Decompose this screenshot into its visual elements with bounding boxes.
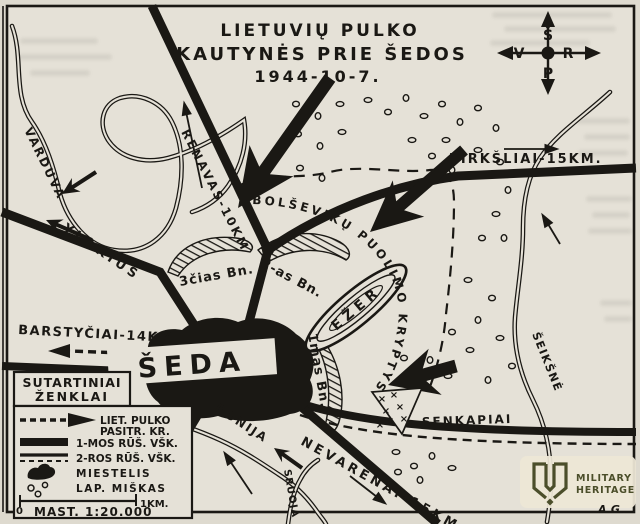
watermark-line2: HERITAGE [576, 485, 635, 496]
title-line3: 1944-10-7. [254, 67, 381, 86]
cross-mark: × [386, 416, 394, 427]
legend-town-label: MIESTELIS [76, 468, 151, 480]
compass-north-label: Š [543, 26, 553, 44]
battle-map-svg: EŽER ××××××× ŠEDA BOLŠEVIKŲ PUOLIMO KRYP… [0, 0, 640, 524]
scale-zero-label: 0 [16, 506, 23, 517]
compass-south-label: P [543, 66, 553, 82]
legend-road1-label: 1-MOS RŪŠ. VŠK. [76, 437, 178, 450]
legend-road2-label: 2-ROS RŪŠ. VŠK. [76, 452, 176, 465]
compass-east-label: R [563, 46, 574, 62]
watermark-line1: MILITARY [576, 473, 632, 484]
title-line1: LIETUVIŲ PULKO [220, 21, 419, 41]
cross-mark: × [376, 420, 384, 431]
road-junction [262, 244, 274, 256]
road-label-tirksliai: TIRKŠLIAI-15KM. [450, 151, 603, 167]
cross-mark: × [378, 394, 386, 405]
author-signature: A.G. [597, 503, 624, 516]
military-heritage-watermark: MILITARY HERITAGE [520, 456, 636, 508]
scanned-battle-map-page: EŽER ××××××× ŠEDA BOLŠEVIKŲ PUOLIMO KRYP… [0, 0, 640, 524]
legend-title-line2: ŽENKLAI [35, 389, 109, 404]
legend-withdrawal-line2: PASITR. KR. [100, 426, 170, 438]
compass-center [542, 47, 555, 60]
scale-text: MAST. 1:20.000 [34, 505, 152, 519]
legend-forest-label: LAP. MIŠKAS [76, 482, 166, 495]
title-line2: KAUTYNĖS PRIE ŠEDOS [176, 43, 468, 65]
cross-mark: × [396, 402, 404, 413]
legend-title-line1: SUTARTINIAI [22, 375, 121, 390]
cross-mark: × [400, 414, 408, 425]
cross-mark: × [390, 390, 398, 401]
compass-west-label: V [514, 46, 525, 62]
